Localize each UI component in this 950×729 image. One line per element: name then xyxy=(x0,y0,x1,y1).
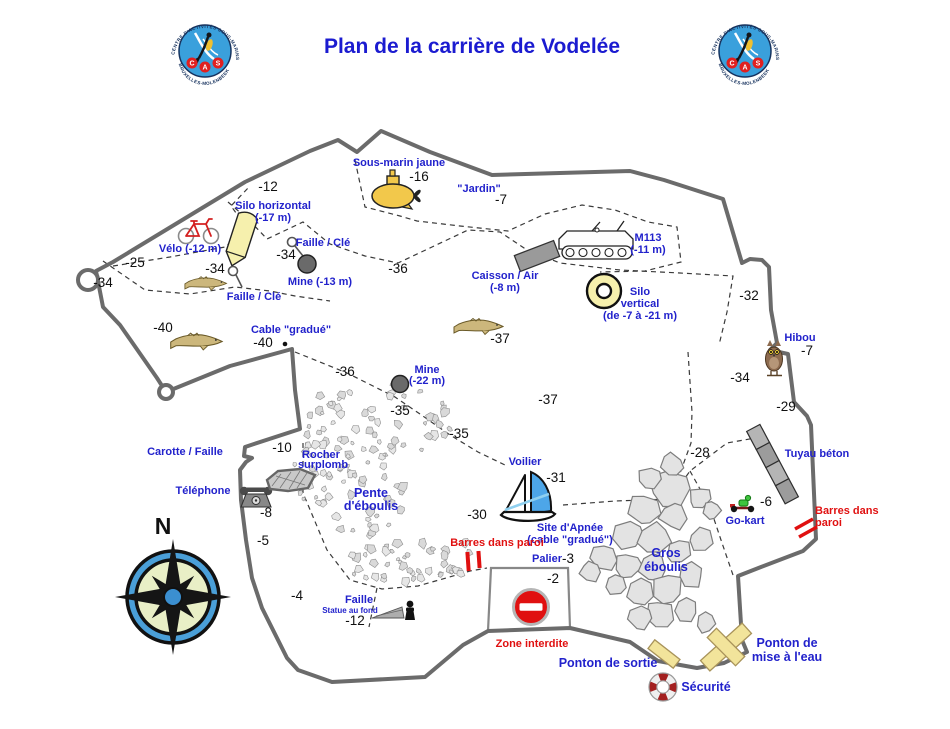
scree-rock xyxy=(337,437,342,442)
big-rock xyxy=(658,503,687,530)
label-ponton-sortie: Ponton de sortie xyxy=(559,656,658,670)
depth-telephone: -8 xyxy=(260,505,272,520)
scree-rock xyxy=(354,565,363,572)
depth-marker: -36 xyxy=(388,261,408,276)
label-faille-cle: Faille / Clé xyxy=(227,291,281,303)
scree-rock xyxy=(457,571,465,578)
label-rocher-surplomb-2: surplomb xyxy=(298,459,348,471)
depth-marker: -37 xyxy=(490,331,510,346)
compass-rose xyxy=(115,539,231,655)
depth-marker: -35 xyxy=(449,426,469,441)
depth-palier: -3 xyxy=(562,551,574,566)
vodelee-quarry-map-page: C A S CENTRE D'ACTIVITÉS SOUS-MARINS BRU… xyxy=(0,0,950,729)
scree-rock xyxy=(375,418,381,426)
scree-rock xyxy=(438,572,443,577)
telephone-icon xyxy=(240,487,272,507)
pin-icon xyxy=(229,267,243,288)
depth-sous-marin: -16 xyxy=(409,169,429,184)
scree-rock xyxy=(307,412,313,419)
scree-rock xyxy=(394,420,402,429)
scree-rock xyxy=(352,572,356,576)
scree-rock xyxy=(405,552,410,557)
label-site-apnee: Site d'Apnée xyxy=(537,522,603,534)
scree-rock xyxy=(425,567,432,575)
depth-marker: -25 xyxy=(125,255,145,270)
depth-cable-gradue: -40 xyxy=(253,335,273,350)
label-pente-eboulis: Pente xyxy=(354,486,388,500)
scree-rock xyxy=(341,480,345,483)
no-entry-sign-icon xyxy=(514,590,549,625)
label-ponton-mise-eau-2: mise à l'eau xyxy=(752,650,822,664)
scree-rock xyxy=(367,545,376,554)
depth-marker: -10 xyxy=(272,440,292,455)
label-go-kart: Go-kart xyxy=(725,515,764,527)
scree-rock xyxy=(293,463,297,468)
scree-rock xyxy=(380,463,387,470)
scree-rock xyxy=(383,453,386,456)
scree-rock xyxy=(416,568,421,573)
scree-rock xyxy=(325,493,333,501)
label-silo-vertical-depth: (de -7 à -21 m) xyxy=(603,310,677,322)
scree-rock xyxy=(385,562,390,567)
scree-rock xyxy=(423,421,426,425)
scree-rock xyxy=(441,550,448,560)
label-caisson: Caisson / Air xyxy=(472,270,540,282)
depth-voilier-2: -30 xyxy=(467,507,487,522)
scree-rock xyxy=(367,406,375,413)
label-barres-paroi-sud: Barres dans paroi xyxy=(450,537,544,549)
scree-rock xyxy=(363,552,367,557)
boundary-knob xyxy=(159,385,173,399)
scree-rock xyxy=(407,568,413,574)
statue-icon xyxy=(405,601,415,620)
label-silo-horizontal-depth: (-17 m) xyxy=(255,212,291,224)
scree-rock xyxy=(316,392,325,400)
big-rock xyxy=(628,606,652,630)
scree-rock xyxy=(353,473,358,478)
scree-rock xyxy=(366,427,374,434)
cable-marker-dot xyxy=(283,342,288,347)
label-barres-paroi-est-2: paroi xyxy=(815,517,842,529)
label-voilier: Voilier xyxy=(509,456,543,468)
label-carotte-faille: Carotte / Faille xyxy=(147,446,223,458)
label-ponton-mise-eau: Ponton de xyxy=(756,636,817,650)
caisson-icon xyxy=(514,241,559,272)
scree-rock xyxy=(402,577,410,587)
label-gros-eboulis-2: éboulis xyxy=(644,560,688,574)
scree-rock xyxy=(419,448,423,452)
scree-rock xyxy=(441,401,445,406)
scree-rock xyxy=(298,491,303,496)
scree-rock xyxy=(307,425,311,429)
scree-rock xyxy=(392,540,403,549)
depth-jardin: -7 xyxy=(495,192,507,207)
scree-rock xyxy=(317,430,322,435)
depth-voilier: -31 xyxy=(546,470,566,485)
fish-icon xyxy=(171,333,222,350)
label-m113: M113 xyxy=(635,232,662,244)
depth-marker: -40 xyxy=(153,320,173,335)
depth-marker: -36 xyxy=(335,364,355,379)
scree-rock xyxy=(321,486,326,492)
scree-rock xyxy=(311,440,321,449)
scree-rock xyxy=(366,518,371,522)
label-sous-marin: Sous-marin jaune xyxy=(353,157,445,169)
scree-rock xyxy=(418,390,423,394)
scree-rock xyxy=(368,416,374,421)
scree-rock xyxy=(441,431,448,438)
depth-marker: -34 xyxy=(205,261,225,276)
scree-rock xyxy=(372,432,377,438)
depth-faille-statue: -12 xyxy=(345,613,365,628)
big-rock xyxy=(675,598,696,622)
concrete-pipe-icon xyxy=(747,424,799,503)
depth-marker: -37 xyxy=(538,392,558,407)
scree-rock xyxy=(304,431,311,440)
scree-rock xyxy=(401,443,406,448)
scree-rock xyxy=(386,523,391,527)
scree-rock xyxy=(366,461,370,465)
big-rock xyxy=(654,576,682,604)
scree-rock xyxy=(351,426,360,434)
wall-bars-icon xyxy=(465,551,481,571)
label-tuyau-beton: Tuyau béton xyxy=(785,448,850,460)
scree-rock xyxy=(381,473,387,480)
label-telephone: Téléphone xyxy=(175,485,230,497)
label-velo: Vélo (-12 m) xyxy=(159,243,222,255)
scree-rock xyxy=(430,547,436,551)
label-mine-22-depth: (-22 m) xyxy=(409,375,445,387)
label-mine-13: Mine (-13 m) xyxy=(288,276,353,288)
big-rock xyxy=(698,612,716,633)
scree-rock xyxy=(411,576,416,582)
label-securite: Sécurité xyxy=(681,680,730,694)
scree-rock xyxy=(418,574,426,582)
label-barres-paroi-est: Barres dans xyxy=(815,505,879,517)
label-faille-cle: Faille / Clé xyxy=(296,237,350,249)
big-rock xyxy=(627,578,654,605)
label-pente-eboulis-2: d'éboulis xyxy=(344,499,398,513)
label-silo-vertical-2: vertical xyxy=(621,298,660,310)
scree-rock xyxy=(361,447,366,452)
depth-hibou: -7 xyxy=(801,343,813,358)
scree-rock xyxy=(371,573,379,581)
scree-rock xyxy=(369,446,379,454)
big-rock xyxy=(579,561,600,582)
depth-marker: -34 xyxy=(730,370,750,385)
horizontal-silo-icon xyxy=(222,210,258,269)
scree-rock xyxy=(302,497,305,501)
label-silo-vertical: Silo xyxy=(630,286,650,298)
depth-marker: -34 xyxy=(276,247,296,262)
scree-rock xyxy=(369,559,378,568)
quarry-map: N Sous-marin jaune -16 "Jardin" -7 Silo … xyxy=(78,131,879,701)
scree-rock xyxy=(348,552,356,559)
big-rock xyxy=(606,575,626,595)
label-zone-interdite: Zone interdite xyxy=(496,638,569,650)
scree-rock xyxy=(419,538,427,549)
mine-icon xyxy=(392,376,409,393)
depth-palier-2: -2 xyxy=(547,571,559,586)
scree-rock xyxy=(331,421,336,425)
depth-marker: -28 xyxy=(690,445,710,460)
bicycle-icon xyxy=(179,219,219,244)
scree-rock xyxy=(364,575,369,580)
label-palier: Palier xyxy=(532,553,563,565)
scree-rock xyxy=(336,525,345,532)
lifebuoy-icon xyxy=(649,673,677,701)
big-rock xyxy=(628,496,661,523)
gokart-icon xyxy=(730,495,754,512)
depth-marker: -34 xyxy=(93,275,113,290)
scree-rock xyxy=(441,560,448,568)
big-rock xyxy=(703,502,721,520)
depth-marker: -4 xyxy=(291,588,303,603)
mine-icon xyxy=(298,255,316,273)
depth-marker: -35 xyxy=(390,403,410,418)
scree-rock xyxy=(377,440,381,445)
depth-marker: -32 xyxy=(739,288,759,303)
page-title: Plan de la carrière de Vodelée xyxy=(324,35,620,58)
scree-rock xyxy=(402,394,407,399)
overhang-rock-icon xyxy=(267,469,315,491)
scree-slope-rocks xyxy=(293,383,473,587)
scree-rock xyxy=(386,392,393,400)
scree-rock xyxy=(374,514,379,518)
depth-marker: -5 xyxy=(257,533,269,548)
depth-marker: -29 xyxy=(776,399,796,414)
vertical-silo-icon xyxy=(587,274,621,308)
north-label: N xyxy=(155,513,172,539)
depth-marker: -12 xyxy=(258,179,278,194)
scree-rock xyxy=(362,409,369,417)
tank-m113-icon xyxy=(559,221,633,259)
big-rock xyxy=(690,527,713,550)
scree-rock xyxy=(315,496,318,500)
fish-icon xyxy=(185,277,227,291)
label-m113-depth: (-11 m) xyxy=(630,244,666,256)
label-faille-statue: Faille xyxy=(345,594,373,606)
scree-rock xyxy=(347,390,353,396)
label-gros-eboulis: Gros xyxy=(651,546,680,560)
scree-rock xyxy=(382,546,391,556)
header: Plan de la carrière de Vodelée xyxy=(166,13,784,91)
big-rock xyxy=(616,555,643,578)
depth-go-kart: -6 xyxy=(760,494,772,509)
scree-rock xyxy=(436,420,444,428)
scree-rock xyxy=(351,528,356,532)
scree-rock xyxy=(351,441,354,445)
scree-rock xyxy=(391,437,399,445)
scree-rock xyxy=(332,512,342,521)
label-silo-horizontal: Silo horizontal xyxy=(235,200,311,212)
label-caisson-depth: (-8 m) xyxy=(490,282,520,294)
